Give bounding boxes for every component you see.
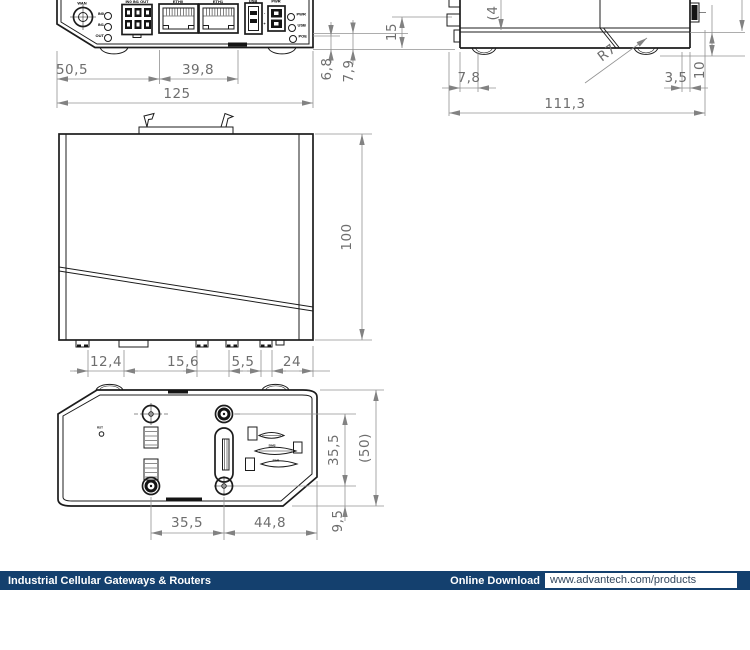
dim-39-8-label: 39,8 <box>182 62 214 78</box>
eth0-label: ETH0 <box>173 0 184 4</box>
dim-12-4-label: 12,4 <box>90 354 122 370</box>
side-view-dimensions: R7 (4 7,8 3,5 111,3 10 <box>442 0 745 116</box>
io-terminal-block <box>122 5 152 38</box>
dim-15-label: 15 <box>384 23 400 41</box>
dim-3-5-label: 3,5 <box>665 70 688 86</box>
reset-hole-icon <box>99 432 104 437</box>
pwr-label: PWR <box>271 0 280 4</box>
dim-50-5-label: 50,5 <box>56 62 88 78</box>
eth1-port <box>199 4 238 33</box>
led-in1-icon <box>105 24 112 31</box>
led-poe-label: POE <box>299 34 308 39</box>
footer-category-label: Industrial Cellular Gateways & Routers <box>0 575 211 587</box>
dim-5-5-label: 5,5 <box>232 354 255 370</box>
bottom-view-dimensions: 35,5 (50) 9,5 35,5 44,8 <box>151 390 384 540</box>
dim-10-label: 10 <box>692 61 708 79</box>
dim-4-label: (4 <box>485 6 501 21</box>
led-in0-label: IN0 <box>98 11 105 16</box>
led-pwr-label: PWR <box>297 12 306 17</box>
sim1-label: SIM1 <box>272 459 279 463</box>
led-poe-icon <box>290 36 297 43</box>
eth1-label: ETH1 <box>213 0 224 4</box>
side-antenna-connector <box>690 3 706 22</box>
led-in1-label: IN1 <box>98 22 105 27</box>
dim-24-label: 24 <box>283 354 301 370</box>
dim-7-8-label: 7,8 <box>458 70 481 86</box>
io-header-label: IN0 IN1 OUT <box>125 0 149 4</box>
eth0-port <box>159 4 198 33</box>
led-in0-icon <box>105 13 112 20</box>
antenna-connector-icon <box>70 4 96 30</box>
download-url-link[interactable]: www.advantech.com/products <box>545 573 737 588</box>
screw-top-left <box>134 403 168 425</box>
din-rail-ridges <box>144 427 158 480</box>
antenna-label: WAN <box>77 1 86 6</box>
usb-label: USB <box>249 0 258 4</box>
dim-35-5-side-label: 35,5 <box>326 434 342 466</box>
dim-100-label: 100 <box>339 223 355 250</box>
plus-mark: + <box>263 21 266 26</box>
led-pwr-icon <box>288 14 295 21</box>
dim-15-6-label: 15,6 <box>167 354 199 370</box>
usb-port <box>245 3 262 34</box>
bottom-view: RST <box>58 384 384 540</box>
minus-mark: - <box>264 10 266 15</box>
dim-50-label: (50) <box>357 433 373 463</box>
sim-slots: SIM2 SIM1 <box>246 427 303 471</box>
sim2-label: SIM2 <box>268 444 275 448</box>
dim-35-5-label: 35,5 <box>171 515 203 531</box>
pwr-connector <box>268 6 285 31</box>
led-usb-label: USB <box>298 23 307 28</box>
led-usb-icon <box>289 25 296 32</box>
din-clip-slot <box>215 428 233 482</box>
dim-9-5-label: 9,5 <box>330 510 346 533</box>
technical-drawing: WAN IN0 IN1 OUT IN0 IN1 OUT E <box>0 0 750 650</box>
front-panel-view: WAN IN0 IN1 OUT IN0 IN1 OUT E <box>56 0 455 108</box>
dim-44-8-label: 44,8 <box>254 515 286 531</box>
side-view: R7 (4 7,8 3,5 111,3 10 <box>442 0 745 116</box>
online-download-label: Online Download <box>450 575 540 587</box>
dim-125-label: 125 <box>163 86 190 102</box>
dim-111-3-label: 111,3 <box>544 96 585 112</box>
footer-bar: Industrial Cellular Gateways & Routers O… <box>0 571 750 590</box>
dim-r7-label: R7 <box>595 41 620 65</box>
top-view: 100 12,4 15,6 5,5 24 <box>59 114 372 378</box>
reset-label: RST <box>97 426 103 430</box>
dim-7-9-label: 7,9 <box>341 60 357 83</box>
led-out-icon <box>105 35 112 42</box>
dim-6-8-label: 6,8 <box>319 58 335 81</box>
led-out-label: OUT <box>96 33 105 38</box>
